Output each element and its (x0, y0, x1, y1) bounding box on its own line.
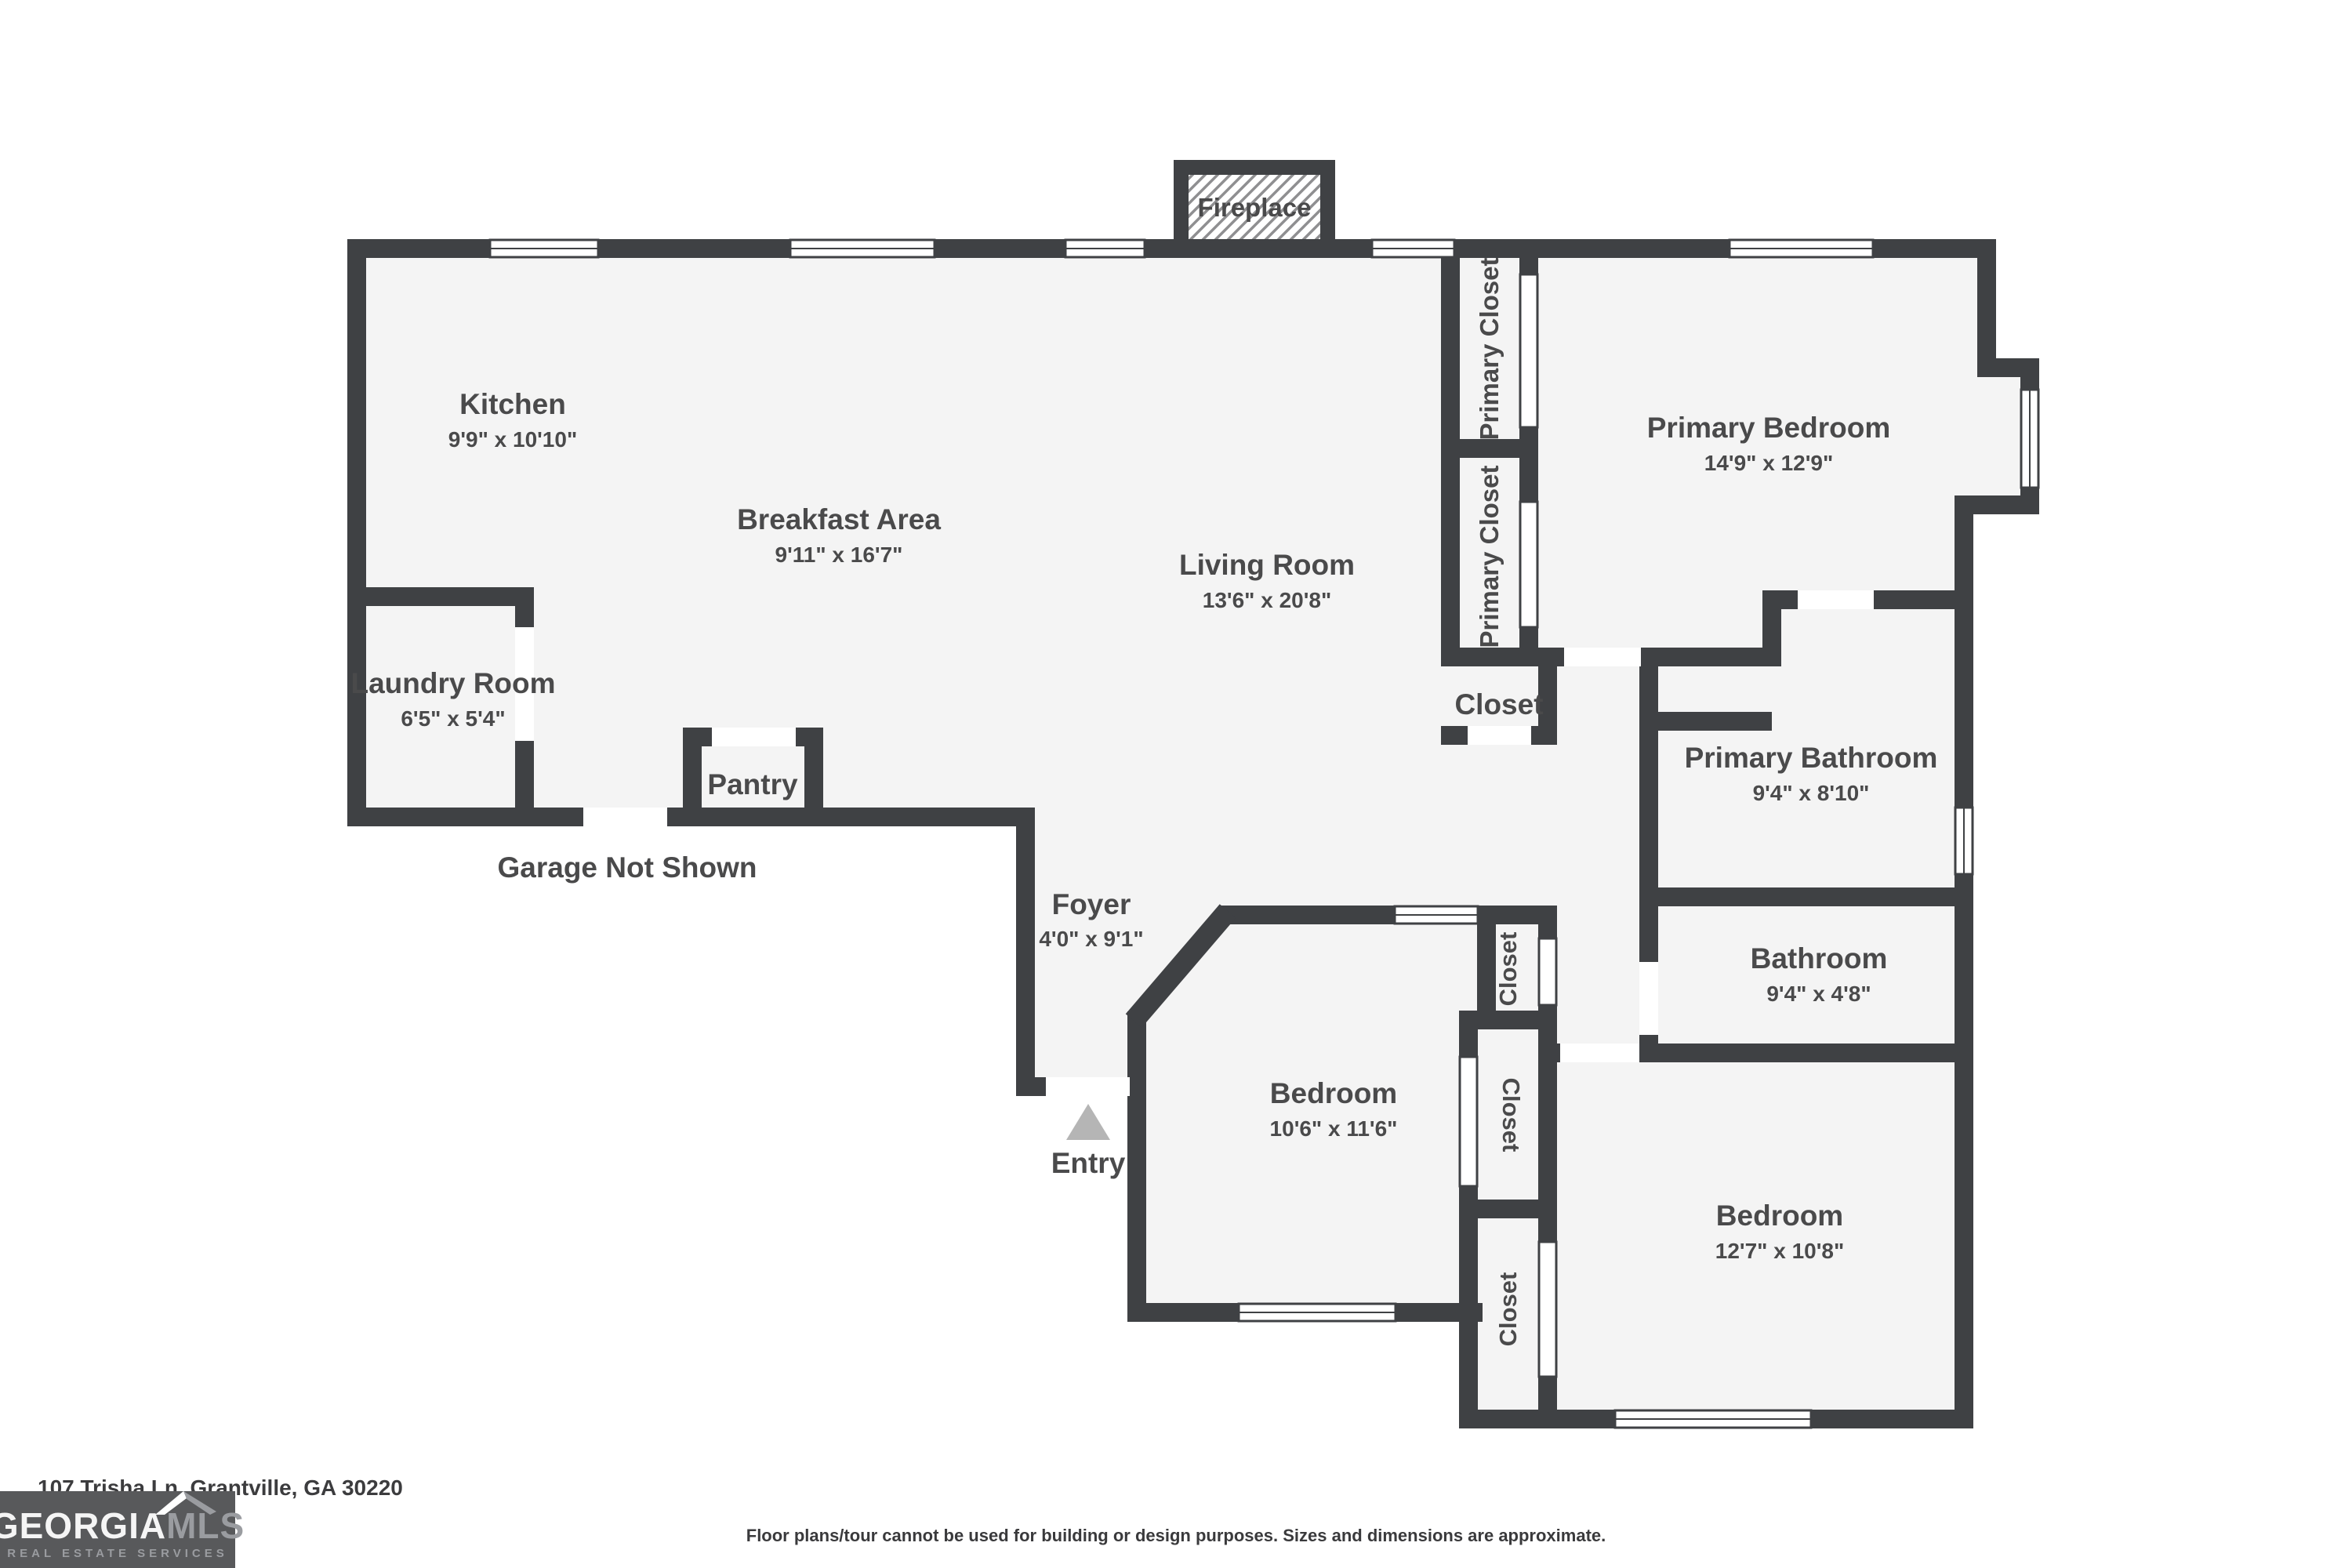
entry-arrow-icon (1066, 1104, 1110, 1140)
bathroom-door-opening (1639, 962, 1658, 1035)
hall-to-primary-opening (1564, 648, 1641, 666)
primary-bedroom-dims: 14'9" x 12'9" (1704, 451, 1833, 475)
bedroom-br-label: Bedroom (1716, 1200, 1843, 1232)
garage-door-opening (583, 808, 667, 826)
floor-plan-drawing: Fireplace Kitchen 9'9" x 10'10" Breakfas… (0, 0, 2352, 1568)
bedroom-br-dims: 12'7" x 10'8" (1715, 1239, 1844, 1263)
primary-bathroom-dims: 9'4" x 8'10" (1753, 781, 1870, 805)
closet-top-label: Closet (1494, 932, 1522, 1007)
garage-note: Garage Not Shown (498, 851, 757, 884)
primary-bedroom-label: Primary Bedroom (1647, 412, 1891, 444)
georgia-mls-logo: GEORGIAMLS REAL ESTATE SERVICES (0, 1491, 235, 1568)
logo-roof-icon (155, 1491, 216, 1515)
bedroom-mid-dims: 10'6" x 11'6" (1270, 1116, 1398, 1141)
logo-text-georgia: GEORGIA (0, 1505, 166, 1546)
entry-door-opening (1046, 1077, 1130, 1096)
closet-bottom-label: Closet (1494, 1272, 1522, 1347)
bedroom-door-opening (1560, 1044, 1639, 1062)
primary-bath-corridor-opening (1798, 590, 1874, 609)
living-room-label: Living Room (1179, 549, 1355, 581)
laundry-room-label: Laundry Room (350, 667, 555, 699)
hall-closet-label: Closet (1454, 688, 1543, 720)
kitchen-dims: 9'9" x 10'10" (448, 427, 577, 452)
bedroom-mid-label: Bedroom (1270, 1077, 1397, 1109)
pantry-door-opening (712, 728, 796, 746)
kitchen-label: Kitchen (459, 388, 566, 420)
foyer-label: Foyer (1052, 888, 1131, 920)
closet-mid-label: Closet (1497, 1078, 1525, 1152)
laundry-room-dims: 6'5" x 5'4" (401, 706, 505, 731)
bathroom-dims: 9'4" x 4'8" (1766, 982, 1871, 1006)
bathroom-label: Bathroom (1751, 942, 1888, 975)
primary-closet-upper-label: Primary Closet (1475, 258, 1504, 441)
fireplace-label: Fireplace (1198, 193, 1312, 222)
breakfast-area-label: Breakfast Area (737, 503, 941, 535)
pantry-label: Pantry (707, 768, 798, 800)
logo-tagline: REAL ESTATE SERVICES (7, 1547, 227, 1560)
living-room-dims: 13'6" x 20'8" (1203, 588, 1331, 612)
primary-bathroom-label: Primary Bathroom (1685, 742, 1938, 774)
entry-label: Entry (1051, 1147, 1126, 1179)
hall-closet-door-opening (1468, 726, 1531, 745)
foyer-dims: 4'0" x 9'1" (1039, 927, 1143, 951)
disclaimer-text: Floor plans/tour cannot be used for buil… (0, 1526, 2352, 1546)
floor-plan-page: Fireplace Kitchen 9'9" x 10'10" Breakfas… (0, 0, 2352, 1568)
breakfast-area-dims: 9'11" x 16'7" (775, 543, 903, 567)
primary-closet-lower-label: Primary Closet (1475, 466, 1504, 648)
